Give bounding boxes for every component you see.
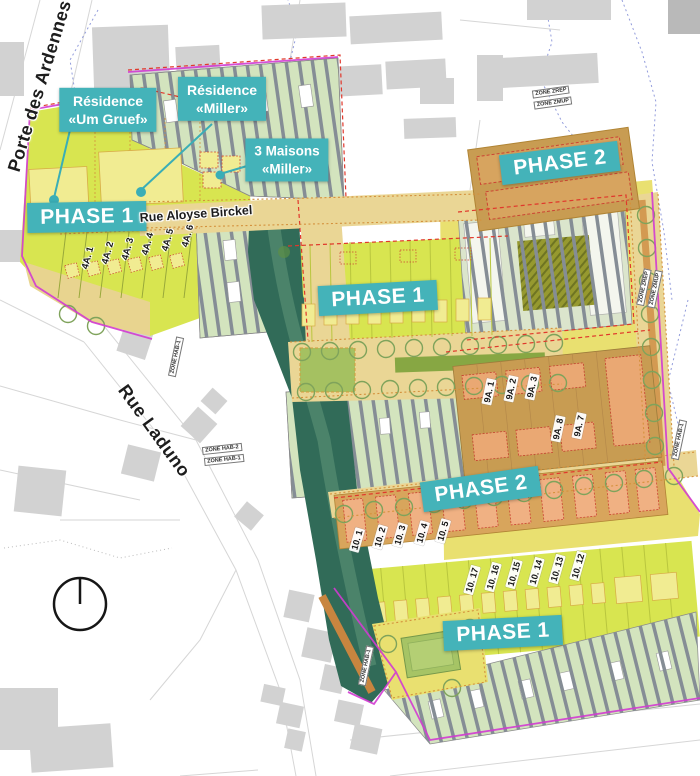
contour-gray	[4, 540, 172, 558]
residence-line: 3 Maisons	[254, 143, 319, 158]
residence-line: «Miller»	[196, 100, 248, 116]
phase-label-1-center: PHASE 1	[318, 280, 439, 316]
callout-maisons-miller: 3 Maisons «Miller»	[245, 138, 328, 181]
residence-line: «Um Gruef»	[68, 111, 147, 127]
residence-line: «Miller»	[262, 161, 312, 176]
residence-line: Résidence	[187, 82, 257, 98]
phase-label-1-south: PHASE 1	[443, 615, 564, 651]
phase-label-1-west: PHASE 1	[27, 201, 147, 233]
callout-residence-miller: Résidence «Miller»	[178, 77, 266, 121]
phase2-9a-block	[453, 346, 662, 478]
residence-line: Résidence	[73, 93, 143, 109]
site-plan: Résidence «Um Gruef» Résidence «Miller» …	[0, 0, 700, 776]
north-compass	[54, 578, 106, 630]
callout-residence-um-gruef: Résidence «Um Gruef»	[59, 88, 156, 132]
corridor-shrub	[278, 246, 290, 258]
